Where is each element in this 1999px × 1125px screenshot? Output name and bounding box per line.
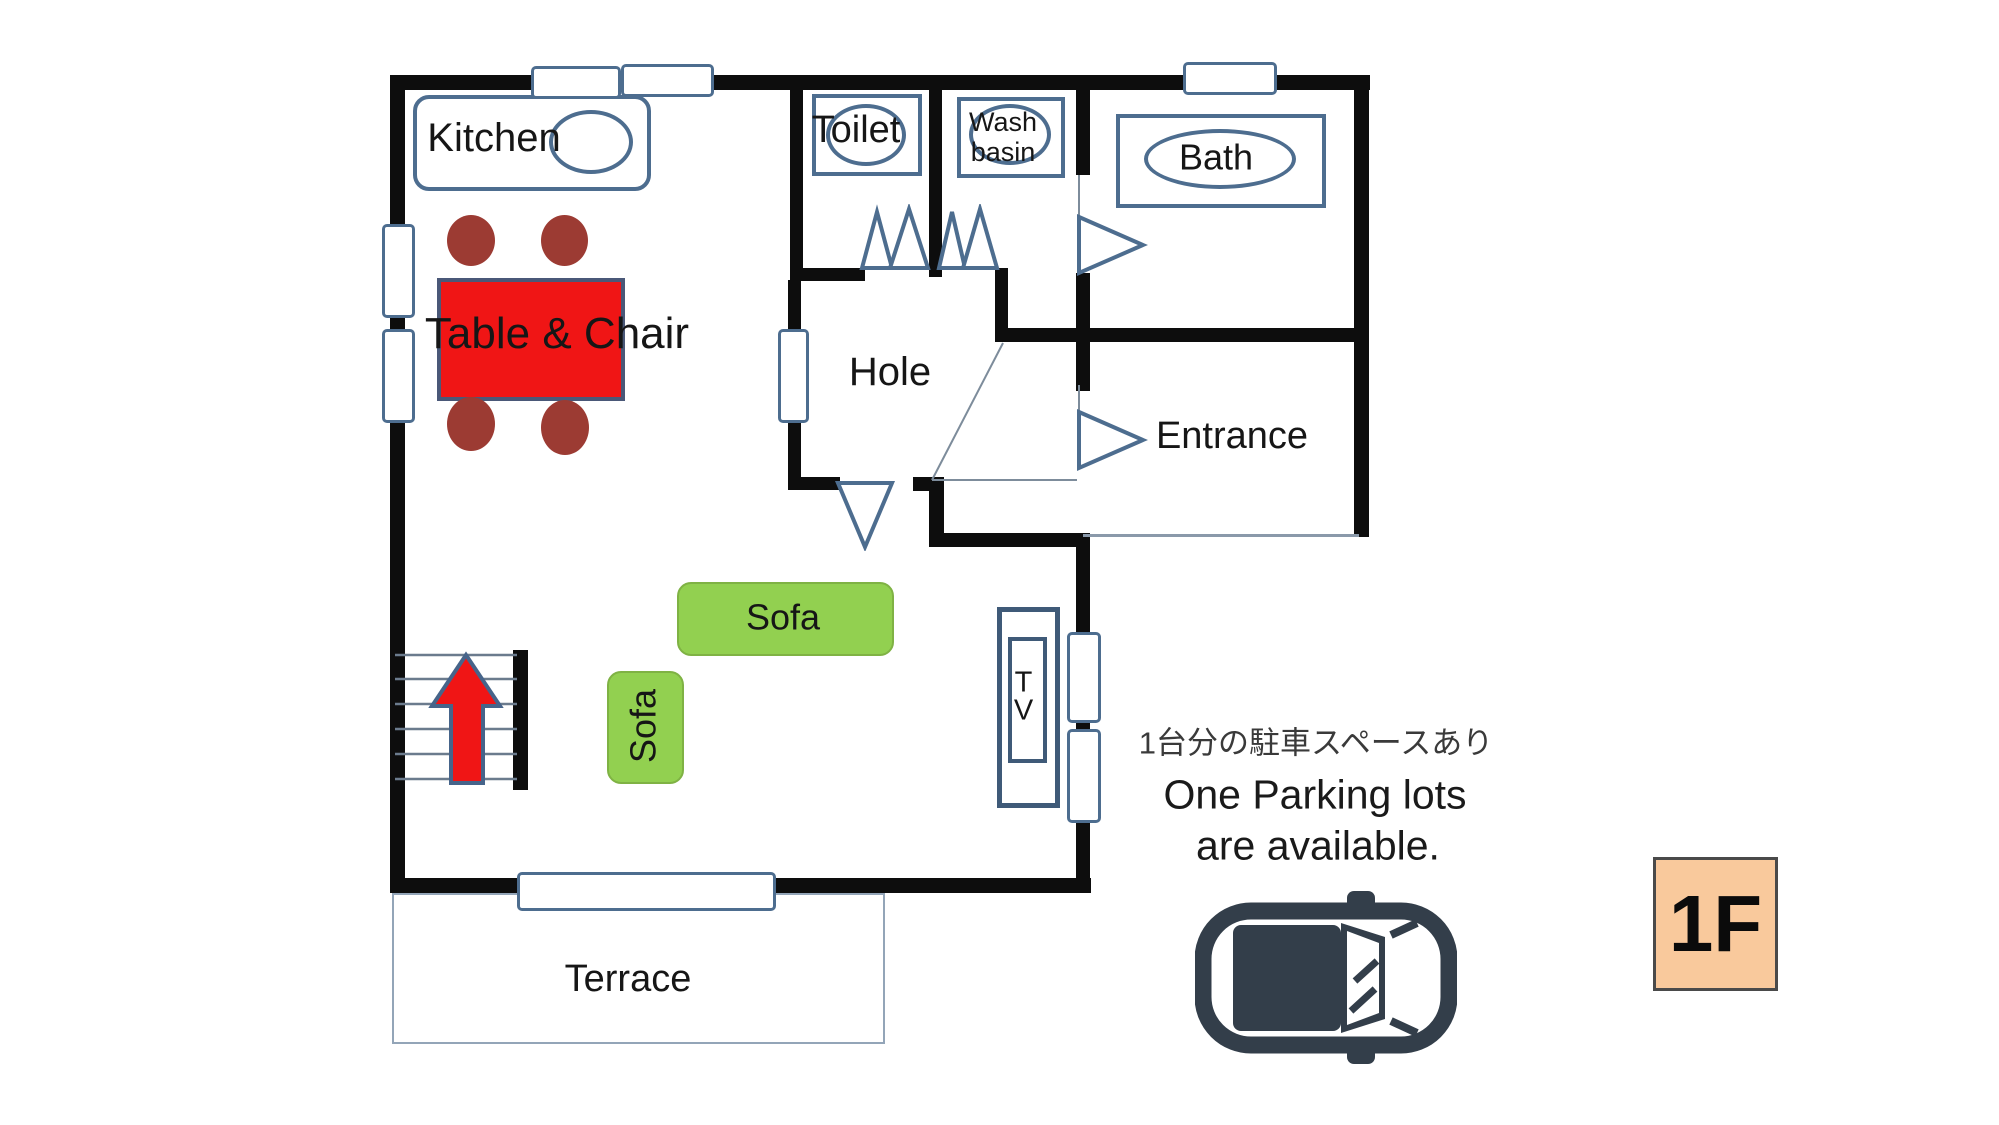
floor-plan-1f: Kitchen Toilet Wash basin Bath Table & C… (0, 0, 1999, 1125)
wall-toilet-bottom (790, 268, 865, 281)
window-symbol (1067, 729, 1101, 823)
wall-genkan-bottom (929, 533, 1076, 547)
wall-toilet-left (790, 75, 803, 280)
wall-living-right-lower (1076, 815, 1090, 893)
terrace-label: Terrace (565, 960, 692, 1000)
hole-label: Hole (849, 352, 931, 394)
toilet-door-icon (858, 204, 932, 274)
kitchen-sink-icon (549, 110, 633, 174)
genkan-step-lines (925, 338, 1085, 486)
floor-badge-1f: 1F (1653, 857, 1778, 991)
sofa-long-label: Sofa (746, 598, 820, 635)
entrance-boundary-line (1083, 534, 1359, 537)
kitchen-label: Kitchen (427, 118, 560, 160)
window-symbol (621, 64, 714, 97)
parking-note-jp: 1台分の駐車スペースあり (1139, 718, 1494, 763)
tv-label: TV (1009, 669, 1039, 724)
wall-washbasin-bath-top (1076, 75, 1090, 175)
washbasin-door-icon (936, 204, 1000, 274)
chair (447, 397, 495, 451)
parking-note-en-line2: are available. (1196, 823, 1440, 870)
sofa-short-label: Sofa (624, 689, 661, 763)
up-arrow-icon (428, 650, 504, 788)
car-top-view-icon (1195, 885, 1457, 1070)
window-symbol (1067, 632, 1101, 723)
washbasin-label-line1: Wash (969, 108, 1037, 136)
window-symbol (382, 224, 415, 318)
window-symbol (382, 329, 415, 423)
entrance-door-icon (1072, 383, 1148, 473)
terrace-sliding-door-symbol (517, 872, 776, 911)
hole-door-icon (834, 479, 896, 551)
table-chair-label: Table & Chair (425, 311, 689, 357)
window-symbol (778, 329, 809, 423)
toilet-label: Toilet (812, 111, 901, 151)
entrance-label: Entrance (1156, 417, 1308, 457)
bath-door-icon (1072, 173, 1148, 277)
window-symbol (531, 66, 621, 99)
window-symbol (1183, 62, 1277, 95)
chair (447, 215, 495, 266)
wall-hole-bottom (788, 477, 840, 490)
chair (541, 400, 589, 455)
chair (541, 215, 588, 266)
wall-right (1354, 75, 1369, 537)
bath-label: Bath (1179, 138, 1253, 175)
washbasin-label-line2: basin (971, 138, 1036, 166)
wall-living-right-upper (1076, 533, 1090, 635)
parking-note-en-line1: One Parking lots (1163, 772, 1466, 819)
